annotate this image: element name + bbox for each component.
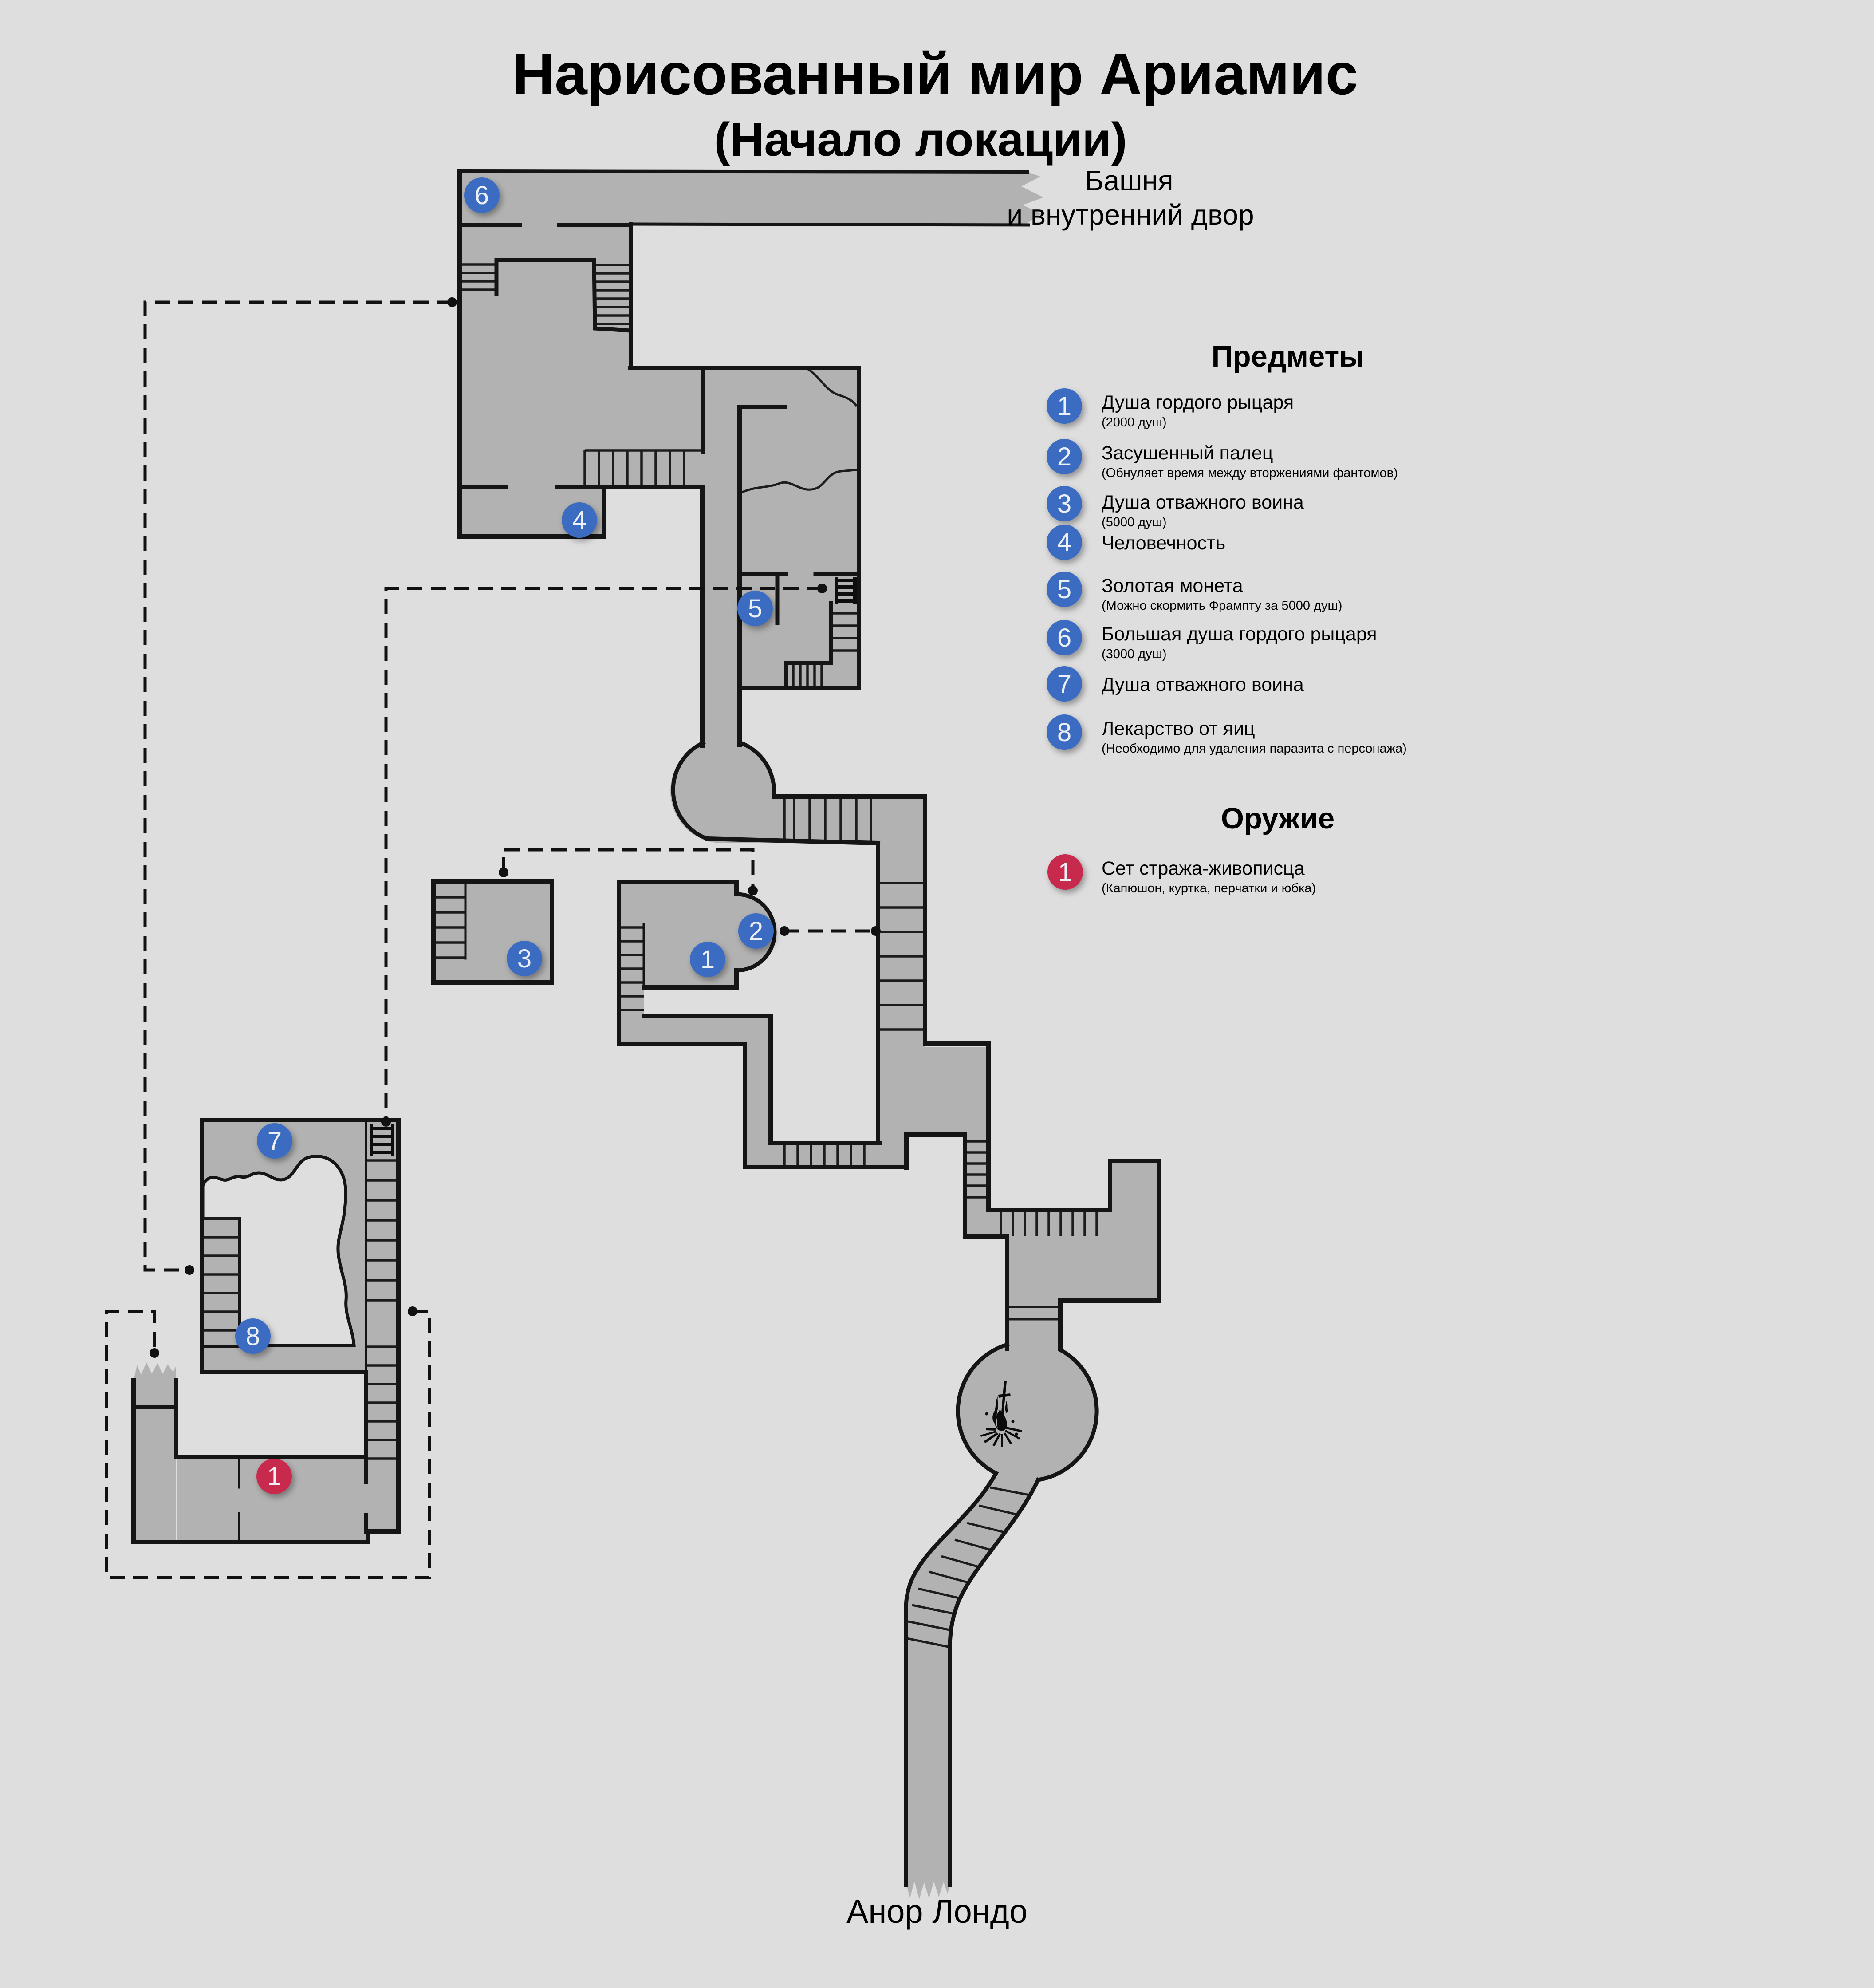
svg-text:(Необходимо для удаления параз: (Необходимо для удаления паразита с перс… [1102,742,1407,756]
svg-text:Большая душа гордого рыцаря: Большая душа гордого рыцаря [1102,623,1377,645]
svg-text:6: 6 [1057,623,1071,652]
svg-text:1: 1 [701,945,715,974]
svg-text:8: 8 [1057,718,1071,747]
svg-text:7: 7 [1057,670,1071,698]
svg-text:Сет стража-живописца: Сет стража-живописца [1102,858,1305,879]
svg-text:Лекарство от яиц: Лекарство от яиц [1102,718,1255,739]
svg-text:(2000 душ): (2000 душ) [1102,415,1167,430]
svg-text:(Можно скормить Фрампту за 500: (Можно скормить Фрампту за 5000 душ) [1102,599,1342,613]
svg-text:Душа отважного воина: Душа отважного воина [1102,674,1304,695]
svg-text:Душа отважного воина: Душа отважного воина [1102,492,1304,513]
svg-text:(Обнуляет время между вторжени: (Обнуляет время между вторжениями фантом… [1102,466,1398,480]
svg-text:(Капюшон, куртка, перчатки и ю: (Капюшон, куртка, перчатки и юбка) [1102,881,1316,895]
svg-text:Золотая монета: Золотая монета [1102,575,1243,596]
svg-text:3: 3 [517,944,531,973]
svg-text:Предметы: Предметы [1212,340,1365,373]
svg-text:1: 1 [1058,858,1072,887]
svg-text:8: 8 [246,1322,260,1351]
svg-text:(5000 душ): (5000 душ) [1102,515,1167,529]
svg-text:4: 4 [572,506,587,535]
svg-text:7: 7 [268,1127,282,1156]
svg-text:2: 2 [1057,442,1071,471]
svg-text:Анор Лондо: Анор Лондо [846,1893,1028,1930]
svg-text:Душа гордого рыцаря: Душа гордого рыцаря [1102,392,1294,413]
svg-text:и внутренний двор: и внутренний двор [1007,199,1254,231]
svg-text:1: 1 [1057,392,1071,421]
svg-text:1: 1 [267,1462,281,1491]
svg-text:3: 3 [1057,489,1071,518]
svg-text:(3000 душ): (3000 душ) [1102,647,1167,661]
svg-text:2: 2 [749,917,763,946]
svg-text:Оружие: Оружие [1221,802,1335,835]
svg-text:4: 4 [1057,528,1071,557]
svg-text:5: 5 [748,594,762,623]
svg-text:Засушенный палец: Засушенный палец [1102,442,1273,464]
svg-text:Нарисованный мир Ариамис: Нарисованный мир Ариамис [512,41,1358,106]
svg-text:5: 5 [1057,575,1071,604]
svg-text:(Начало локации): (Начало локации) [714,113,1127,166]
svg-text:6: 6 [475,181,489,210]
svg-text:Человечность: Человечность [1102,532,1225,554]
svg-text:Башня: Башня [1085,165,1173,197]
